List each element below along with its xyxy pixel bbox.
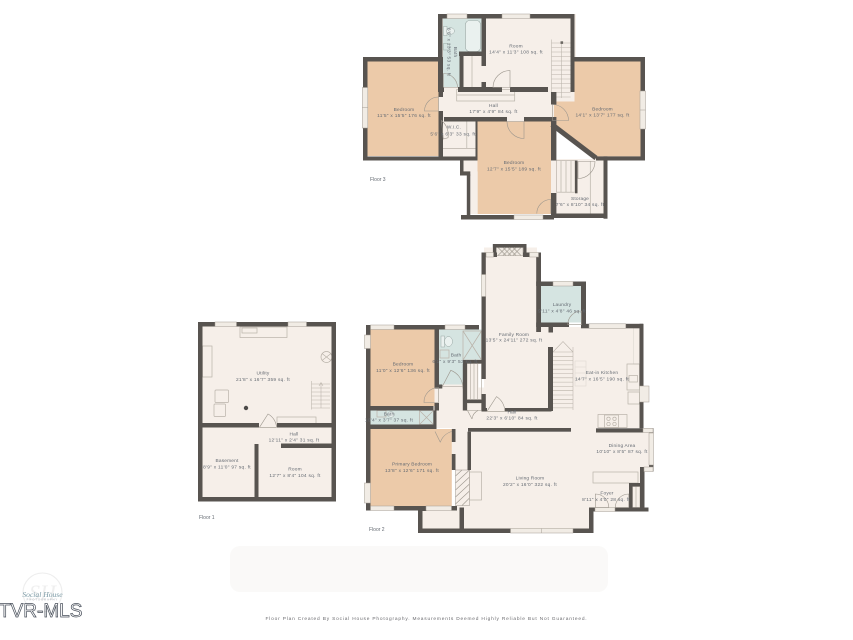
svg-text:21'8" x 16'7" 359 sq. ft: 21'8" x 16'7" 359 sq. ft — [236, 377, 290, 383]
svg-text:Hall: Hall — [290, 432, 299, 438]
svg-text:Eat-in Kitchen: Eat-in Kitchen — [586, 370, 619, 376]
svg-text:Social House: Social House — [22, 590, 63, 599]
svg-text:Living Room: Living Room — [516, 476, 545, 482]
svg-text:13'5" x 24'11" 272 sq. ft: 13'5" x 24'11" 272 sq. ft — [486, 338, 543, 344]
svg-text:Room: Room — [509, 43, 523, 49]
svg-text:Storage: Storage — [571, 196, 589, 202]
svg-text:11'0" x 12'6" 136 sq. ft: 11'0" x 12'6" 136 sq. ft — [376, 368, 430, 374]
svg-text:11'5" x 15'5" 176 sq. ft: 11'5" x 15'5" 176 sq. ft — [377, 113, 431, 119]
svg-text:6'6" x 13'3" 53 sq. ft: 6'6" x 13'3" 53 sq. ft — [446, 28, 452, 77]
svg-text:14'4" x 11'3" 108 sq. ft: 14'4" x 11'3" 108 sq. ft — [489, 49, 543, 55]
svg-text:Floor Plan Created By Social H: Floor Plan Created By Social House Photo… — [266, 616, 588, 622]
svg-text:Bedroom: Bedroom — [592, 107, 613, 113]
svg-text:Basement: Basement — [215, 458, 239, 464]
svg-text:Room: Room — [288, 467, 302, 473]
svg-text:Bath: Bath — [451, 353, 462, 359]
svg-text:8'11" x 4'0" 28 sq. ft: 8'11" x 4'0" 28 sq. ft — [582, 497, 630, 503]
svg-text:Floor 1: Floor 1 — [199, 515, 215, 521]
svg-text:TVR-MLS: TVR-MLS — [0, 601, 82, 622]
svg-text:Family Room: Family Room — [499, 332, 529, 338]
svg-text:22'3" x 6'10" 84 sq. ft: 22'3" x 6'10" 84 sq. ft — [486, 416, 538, 422]
svg-text:14'1" x 13'7" 177 sq. ft: 14'1" x 13'7" 177 sq. ft — [575, 113, 629, 119]
svg-text:9'11" x 4'8" 46 sq. ft: 9'11" x 4'8" 46 sq. ft — [538, 308, 586, 314]
svg-text:Floor 2: Floor 2 — [369, 527, 385, 533]
svg-text:7'6" x 8'10" 34 sq. ft: 7'6" x 8'10" 34 sq. ft — [556, 202, 605, 208]
svg-text:13'8" x 12'6" 171 sq. ft: 13'8" x 12'6" 171 sq. ft — [385, 468, 439, 474]
svg-text:5'6" x 6'3" 33 sq. ft: 5'6" x 6'3" 33 sq. ft — [430, 131, 476, 137]
svg-text:17'9" x 4'9" 84 sq. ft: 17'9" x 4'9" 84 sq. ft — [469, 109, 518, 115]
svg-text:Laundry: Laundry — [553, 302, 572, 308]
svg-text:Primary Bedroom: Primary Bedroom — [392, 462, 432, 468]
svg-text:6'1" x 9'3" 53 sq. ft: 6'1" x 9'3" 53 sq. ft — [432, 359, 478, 365]
svg-text:12'11" x 2'4" 31 sq. ft: 12'11" x 2'4" 31 sq. ft — [269, 438, 320, 444]
svg-text:14'7" x 16'5" 190 sq. ft: 14'7" x 16'5" 190 sq. ft — [575, 377, 629, 383]
svg-text:Bedroom: Bedroom — [394, 107, 415, 113]
svg-text:Bedroom: Bedroom — [504, 160, 525, 166]
svg-text:12'7" x 8'4" 104 sq. ft: 12'7" x 8'4" 104 sq. ft — [269, 473, 321, 479]
svg-text:Foyer: Foyer — [600, 491, 613, 497]
svg-text:12'7" x 15'5" 189 sq. ft: 12'7" x 15'5" 189 sq. ft — [487, 167, 541, 173]
svg-text:Bath: Bath — [384, 412, 395, 418]
svg-text:W.I.C.: W.I.C. — [447, 125, 461, 131]
svg-text:Floor 3: Floor 3 — [370, 177, 386, 183]
svg-text:Bedroom: Bedroom — [393, 362, 414, 368]
svg-text:10'10" x 8'5" 87 sq. ft: 10'10" x 8'5" 87 sq. ft — [596, 449, 648, 455]
svg-text:8'9" x 11'0" 97 sq. ft: 8'9" x 11'0" 97 sq. ft — [203, 465, 251, 471]
svg-text:Hall: Hall — [508, 410, 517, 416]
svg-text:Utility: Utility — [257, 371, 270, 377]
svg-text:Hall: Hall — [489, 103, 498, 109]
svg-text:20'2" x 16'0" 322 sq. ft: 20'2" x 16'0" 322 sq. ft — [503, 482, 557, 488]
svg-text:10'4" x 3'7" 37 sq. ft: 10'4" x 3'7" 37 sq. ft — [365, 418, 414, 424]
svg-text:Bath: Bath — [452, 47, 458, 58]
svg-text:Dining Area: Dining Area — [609, 443, 636, 449]
